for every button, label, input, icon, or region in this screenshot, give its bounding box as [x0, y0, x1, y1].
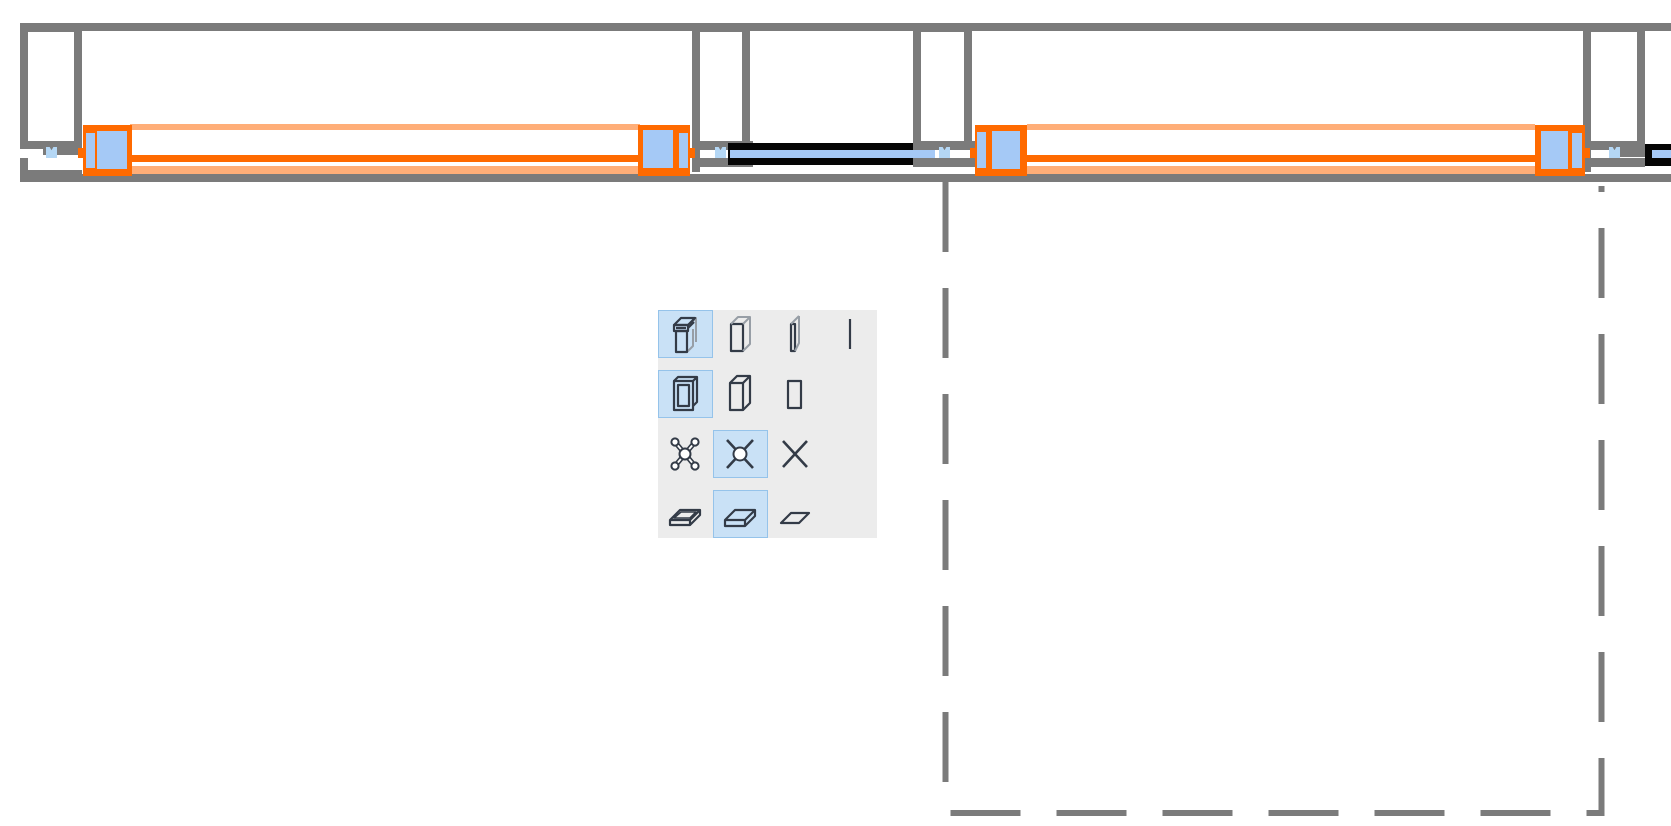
window1-right-jamb-glass[interactable] — [643, 130, 673, 168]
palette-option-column-cross-circle[interactable] — [713, 430, 768, 478]
window2-left-jamb-glass-edge[interactable] — [977, 132, 986, 168]
column-cross-plain-icon — [775, 432, 815, 476]
window-3d-panel-icon — [775, 312, 815, 356]
window2-left-anchor-tab[interactable] — [970, 148, 975, 158]
column-c-foot — [913, 141, 977, 150]
slab-3d-detailed-icon — [665, 492, 705, 536]
palette-option-column-cross-detailed[interactable] — [658, 430, 713, 478]
window-3d-detailed-icon — [665, 312, 705, 356]
window1-left-anchor-tab[interactable] — [78, 148, 83, 158]
window2-right-jamb-glass-edge[interactable] — [1572, 133, 1582, 168]
cad-app-window: { "app": { "view": "floor-plan-detail", … — [0, 0, 1671, 826]
column-a-core — [28, 32, 74, 141]
window2-sill-line[interactable] — [1027, 166, 1535, 174]
wall-top-line — [20, 23, 1671, 31]
column-c-track-step — [913, 158, 977, 167]
display-detail-level-palette[interactable] — [658, 310, 877, 538]
palette-option-column-cross-plain[interactable] — [768, 430, 823, 478]
drawing-canvas[interactable] — [0, 0, 1671, 826]
column-d-track-step — [1591, 158, 1645, 167]
wall-bottom-line — [82, 174, 1671, 182]
sill-bracket-horizontal — [20, 170, 82, 182]
palette-option-window-2d-outline[interactable] — [768, 370, 823, 418]
window-3d-simple-icon — [720, 312, 760, 356]
slidingdoor1-glass[interactable] — [730, 150, 935, 158]
palette-option-window-3d-line[interactable] — [822, 310, 877, 358]
window2-frame-line[interactable] — [1027, 155, 1535, 162]
window1-right-anchor-tab[interactable] — [690, 148, 695, 158]
column-c-core — [921, 32, 964, 141]
window1-left-jamb-glass[interactable] — [97, 131, 127, 169]
slidingdoor2-glass[interactable] — [1652, 150, 1671, 158]
palette-option-window-3d-panel[interactable] — [768, 310, 823, 358]
window2-right-anchor-tab[interactable] — [1585, 148, 1590, 158]
slab-3d-simple-icon — [720, 492, 760, 536]
palette-option-window-3d-simple[interactable] — [713, 310, 768, 358]
window1-head-line[interactable] — [130, 124, 640, 130]
column-b-core — [700, 32, 742, 141]
column-d-track-connector — [1620, 149, 1645, 157]
palette-option-window-2d-detailed[interactable] — [658, 370, 713, 418]
window1-sill-line[interactable] — [130, 166, 640, 174]
window1-left-jamb-glass-edge[interactable] — [86, 133, 95, 168]
column-d-core — [1591, 32, 1637, 141]
palette-option-slab-3d-simple[interactable] — [713, 490, 768, 538]
window2-head-line[interactable] — [1027, 124, 1535, 130]
window2-right-jamb-glass[interactable] — [1541, 131, 1568, 169]
slab-2d-outline-icon — [775, 492, 815, 536]
column-cross-circle-icon — [720, 432, 760, 476]
palette-option-window-2d-simple[interactable] — [713, 370, 768, 418]
window-2d-outline-icon — [775, 372, 815, 416]
window1-frame-line[interactable] — [130, 155, 640, 162]
palette-option-slab-3d-detailed[interactable] — [658, 490, 713, 538]
window1-right-jamb-glass-edge[interactable] — [679, 133, 688, 168]
palette-option-window-3d-detailed[interactable] — [658, 310, 713, 358]
window2-left-jamb-glass[interactable] — [992, 131, 1020, 169]
window-2d-simple-icon — [720, 372, 760, 416]
palette-option-slab-2d-outline[interactable] — [768, 490, 823, 538]
column-cross-detailed-icon — [665, 432, 705, 476]
window-2d-detailed-icon — [665, 372, 705, 416]
window-3d-line-icon — [830, 312, 870, 356]
